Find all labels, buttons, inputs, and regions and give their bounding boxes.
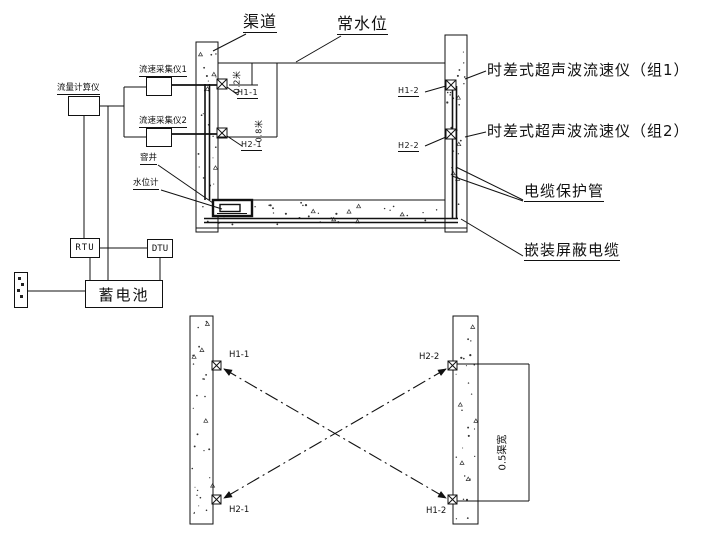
section-h2-1-tag: H2-1 — [241, 141, 262, 151]
rtu-box: RTU — [70, 238, 100, 258]
schematic-linework — [0, 0, 716, 544]
rtu-label: RTU — [75, 243, 94, 253]
water-level-gauge-label: 水位计 — [133, 179, 159, 190]
concrete-hatch — [192, 52, 478, 520]
acoustic-paths — [224, 369, 446, 498]
plan-h1-2-tag: H1-2 — [426, 507, 446, 516]
dtu-box: DTU — [147, 239, 173, 258]
plan-transducer-h1-2 — [448, 495, 457, 504]
plan-h2-2-tag: H2-2 — [419, 353, 439, 362]
plan-transducer-h2-2 — [448, 361, 457, 370]
velocity-collector-2-label: 流速采集仪2 — [139, 117, 187, 128]
transducer-h1-1 — [217, 79, 227, 89]
velocity-collector-1-box — [146, 77, 172, 96]
flow-calculator-label: 流量计算仪 — [57, 84, 100, 95]
velocity-collector-2-box — [146, 128, 172, 147]
channel-label: 渠道 — [243, 14, 277, 33]
well-label: 窨井 — [140, 154, 157, 165]
dim-0-2m: 0.2米 — [234, 71, 242, 94]
flow-calculator-box — [68, 96, 100, 116]
depth-dimensions — [218, 63, 277, 137]
normal-water-level-label: 常水位 — [337, 16, 388, 35]
plan-transducer-h2-1 — [212, 495, 221, 504]
shielded-cable-annotation: 嵌装屏蔽电缆 — [524, 243, 620, 261]
left-edge-device-box — [14, 272, 28, 308]
battery-label: 蓄电池 — [98, 284, 149, 305]
dim-0-5-channel-width: 0.5渠宽 — [499, 435, 510, 471]
plan-h1-1-tag: H1-1 — [229, 351, 249, 360]
plan-transducer-h1-1 — [212, 361, 221, 370]
cable-pipe-annotation: 电缆保护管 — [524, 184, 604, 202]
section-h2-2-tag: H2-2 — [398, 142, 419, 152]
left-edge-device-marks — [18, 277, 21, 280]
plan-h2-1-tag: H2-1 — [229, 506, 249, 515]
group1-annotation: 时差式超声波流速仪（组1） — [487, 63, 690, 79]
dim-0-8m: 0.8米 — [256, 120, 264, 143]
transducer-h2-2 — [446, 129, 456, 139]
transducer-h1-2 — [446, 80, 456, 90]
engineering-drawing-canvas: RTU DTU 蓄电池 渠道 常水位 时差式超声波流速仪（组1） 时差式超声波流… — [0, 0, 716, 544]
section-h1-2-tag: H1-2 — [398, 87, 419, 97]
velocity-collector-1-label: 流速采集仪1 — [139, 66, 187, 77]
battery-box: 蓄电池 — [85, 280, 163, 308]
dtu-label: DTU — [152, 244, 168, 254]
group2-annotation: 时差式超声波流速仪（组2） — [487, 124, 690, 140]
